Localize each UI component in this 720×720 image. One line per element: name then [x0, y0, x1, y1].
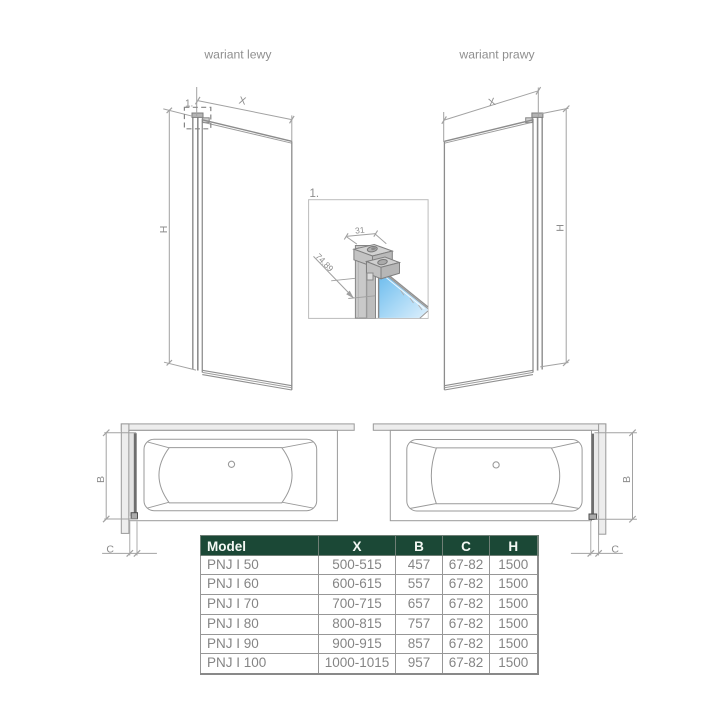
- svg-text:74.89: 74.89: [314, 251, 336, 273]
- svg-text:wariant prawy: wariant prawy: [458, 47, 535, 61]
- svg-text:C: C: [611, 544, 619, 556]
- svg-text:X: X: [238, 95, 247, 108]
- svg-text:B: B: [621, 476, 633, 483]
- svg-text:31: 31: [355, 225, 366, 236]
- svg-text:H: H: [158, 226, 170, 234]
- svg-text:B: B: [95, 476, 107, 483]
- svg-text:1.: 1.: [310, 188, 320, 200]
- svg-text:C: C: [106, 544, 114, 556]
- svg-text:H: H: [555, 224, 567, 232]
- svg-text:X: X: [487, 96, 496, 109]
- svg-text:1.: 1.: [185, 98, 193, 109]
- svg-text:wariant lewy: wariant lewy: [203, 47, 272, 61]
